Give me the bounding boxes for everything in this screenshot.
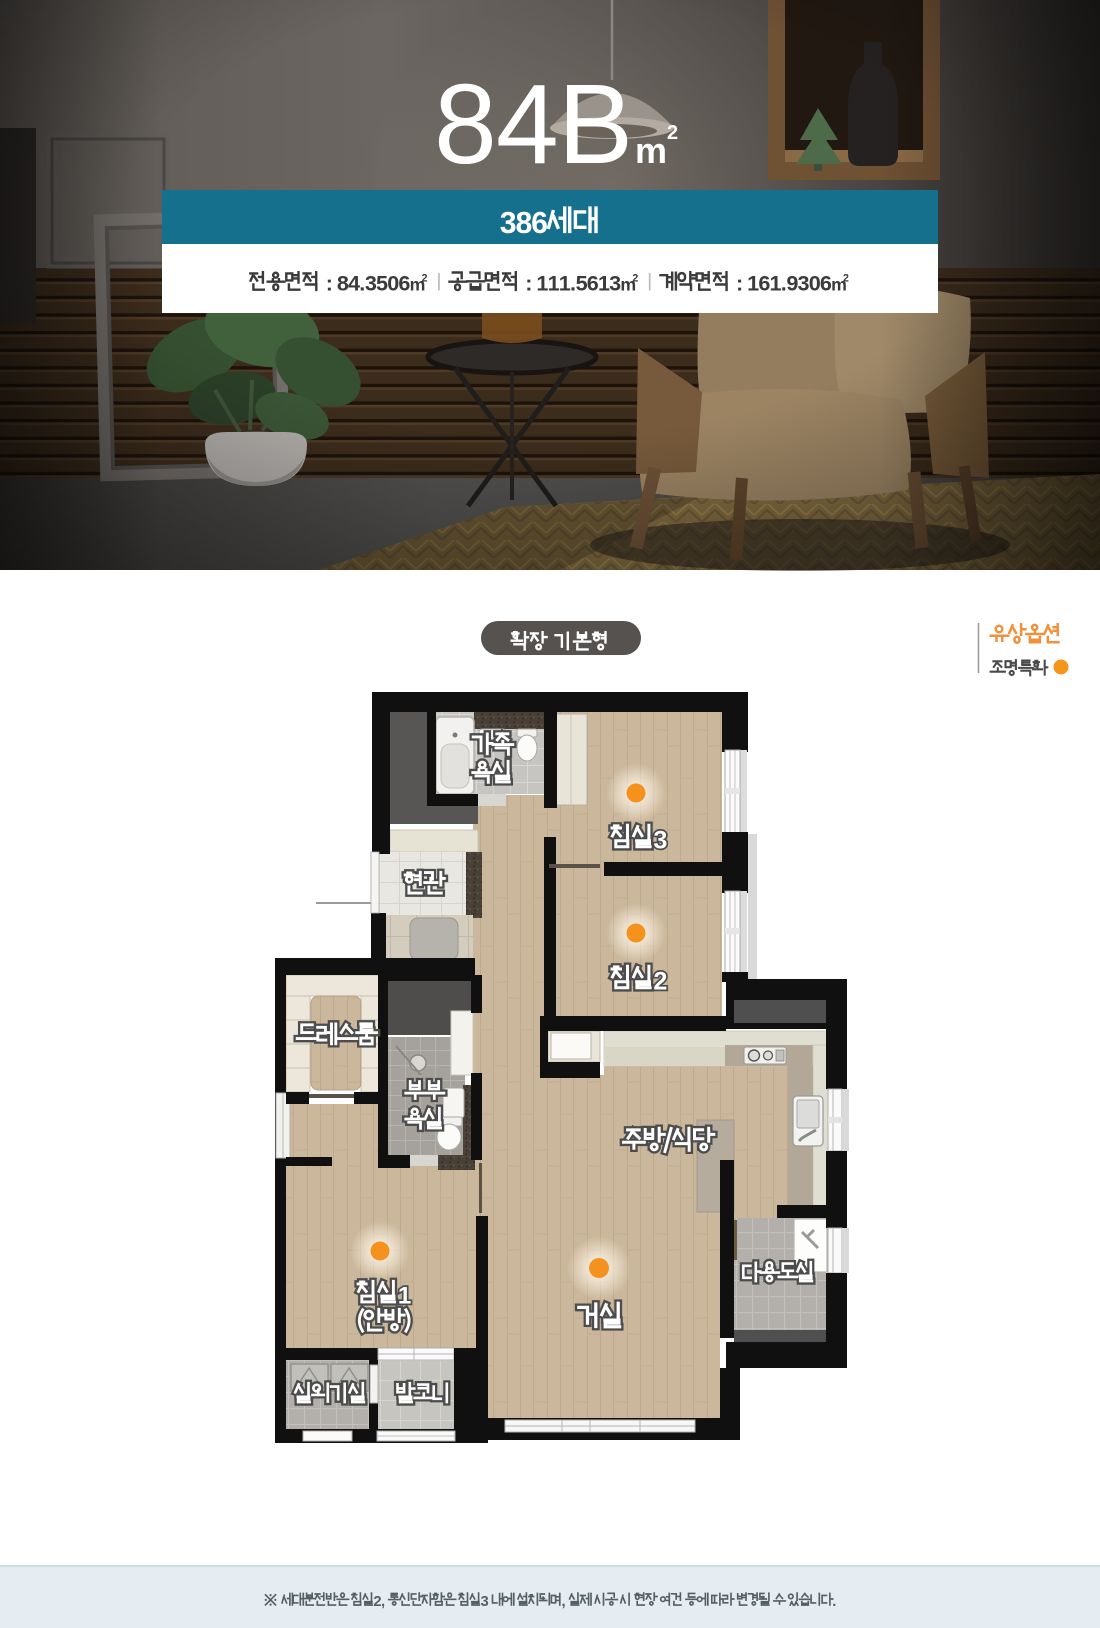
svg-text:,: ,	[381, 1594, 385, 1610]
svg-text:3: 3	[653, 826, 667, 854]
svg-text:,: ,	[561, 1594, 565, 1610]
svg-text:6: 6	[531, 207, 548, 240]
svg-text:3: 3	[480, 1594, 488, 1610]
svg-text::: :	[326, 271, 333, 296]
svg-text:m: m	[635, 130, 667, 171]
svg-text:1: 1	[398, 1282, 411, 1309]
svg-text:84B: 84B	[434, 61, 632, 187]
svg-text:2: 2	[653, 967, 667, 995]
svg-text:8: 8	[515, 207, 532, 240]
svg-text:3: 3	[500, 207, 517, 240]
svg-text:.: .	[832, 1594, 836, 1610]
svg-text:2: 2	[632, 272, 638, 284]
svg-text:2: 2	[843, 272, 849, 284]
svg-text:2: 2	[667, 122, 678, 144]
svg-text::: :	[525, 271, 532, 296]
svg-text::: :	[736, 271, 743, 296]
svg-text:2: 2	[422, 272, 428, 284]
